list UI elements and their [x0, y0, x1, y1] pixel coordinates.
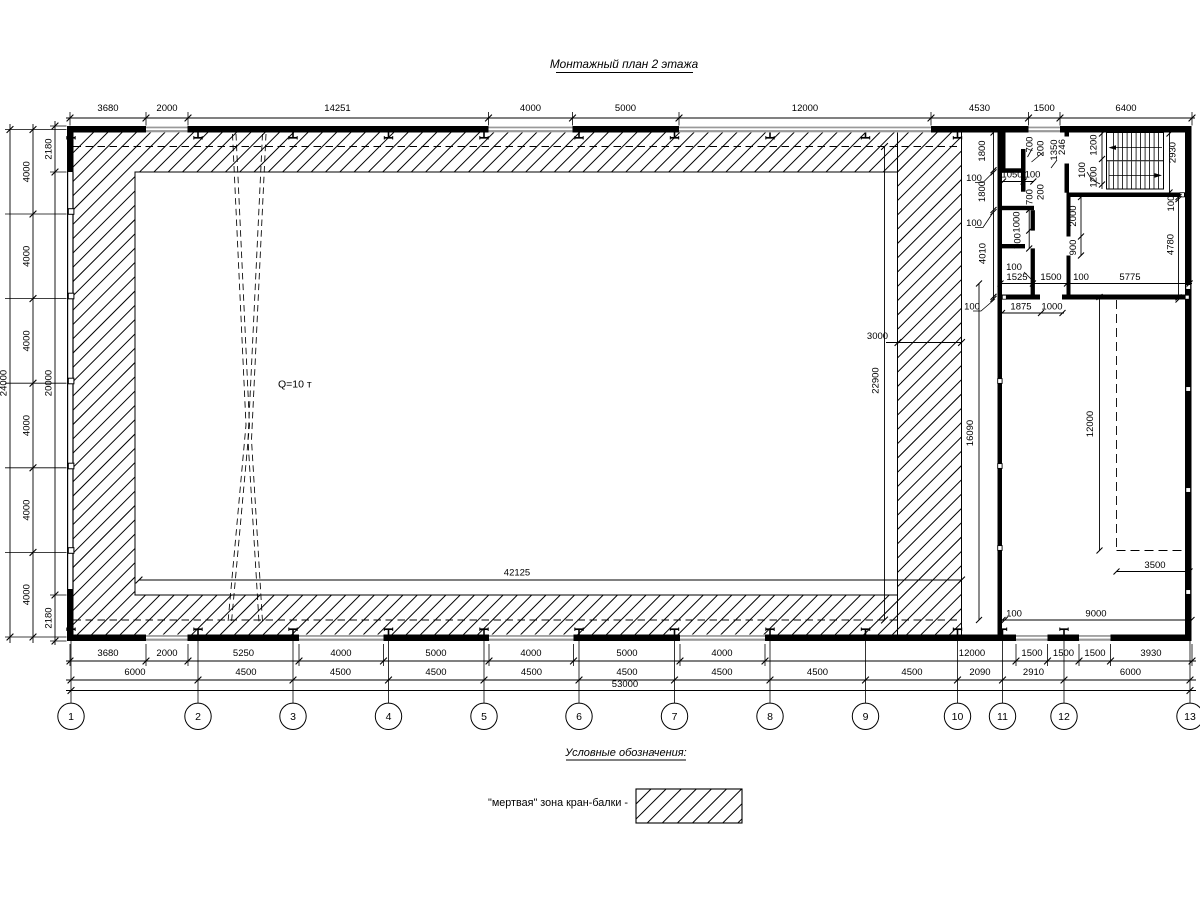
svg-text:4500: 4500 [330, 667, 351, 678]
svg-text:4000: 4000 [520, 103, 541, 114]
svg-text:4530: 4530 [969, 103, 990, 114]
svg-text:1500: 1500 [1021, 648, 1042, 659]
svg-text:2000: 2000 [1068, 205, 1079, 226]
svg-text:1525: 1525 [1006, 272, 1027, 283]
svg-text:11: 11 [997, 711, 1008, 723]
svg-text:4000: 4000 [520, 648, 541, 659]
svg-text:6: 6 [576, 711, 582, 723]
svg-text:1800: 1800 [977, 181, 988, 202]
svg-text:1000: 1000 [1012, 211, 1023, 232]
svg-text:5775: 5775 [1119, 272, 1140, 283]
svg-text:Q=10 т: Q=10 т [278, 379, 312, 391]
svg-text:4000: 4000 [22, 161, 33, 182]
svg-text:100: 100 [1166, 196, 1177, 212]
svg-text:4780: 4780 [1166, 234, 1177, 255]
svg-text:700: 700 [1025, 189, 1036, 205]
svg-text:12000: 12000 [1085, 411, 1096, 437]
svg-text:246: 246 [1057, 139, 1068, 155]
svg-text:4500: 4500 [901, 667, 922, 678]
svg-text:53000: 53000 [612, 679, 638, 690]
svg-text:16090: 16090 [965, 420, 976, 446]
svg-text:8: 8 [767, 711, 773, 723]
svg-text:2000: 2000 [156, 103, 177, 114]
svg-text:4000: 4000 [22, 246, 33, 267]
svg-text:4000: 4000 [330, 648, 351, 659]
svg-text:12000: 12000 [792, 103, 818, 114]
svg-text:2910: 2910 [1023, 667, 1044, 678]
svg-text:9000: 9000 [1085, 609, 1106, 620]
svg-text:1875: 1875 [1010, 302, 1031, 313]
svg-text:2180: 2180 [44, 138, 55, 159]
svg-text:42125: 42125 [504, 568, 530, 579]
svg-text:2: 2 [195, 711, 201, 723]
svg-text:5: 5 [481, 711, 487, 723]
svg-text:3000: 3000 [867, 331, 888, 342]
svg-text:2180: 2180 [44, 607, 55, 628]
svg-text:700: 700 [1013, 233, 1024, 249]
svg-text:6000: 6000 [1120, 667, 1141, 678]
svg-text:13: 13 [1184, 711, 1196, 723]
svg-text:200: 200 [1036, 184, 1047, 200]
svg-text:6400: 6400 [1115, 103, 1136, 114]
svg-text:12000: 12000 [959, 648, 985, 659]
svg-text:1500: 1500 [1084, 648, 1105, 659]
svg-text:4500: 4500 [235, 667, 256, 678]
svg-text:24000: 24000 [0, 370, 10, 396]
svg-text:2000: 2000 [156, 648, 177, 659]
svg-text:4500: 4500 [711, 667, 732, 678]
svg-text:1500: 1500 [1034, 103, 1055, 114]
svg-text:100: 100 [1006, 262, 1022, 273]
svg-text:Монтажный план 2 этажа: Монтажный план 2 этажа [550, 57, 699, 71]
svg-text:5000: 5000 [615, 103, 636, 114]
svg-text:3: 3 [290, 711, 296, 723]
svg-text:4000: 4000 [22, 330, 33, 351]
svg-text:100: 100 [1073, 272, 1089, 283]
svg-text:3680: 3680 [97, 648, 118, 659]
svg-text:3680: 3680 [97, 103, 118, 114]
svg-text:Условные обозначения:: Условные обозначения: [564, 747, 686, 759]
svg-text:4000: 4000 [22, 500, 33, 521]
svg-text:1200: 1200 [1089, 134, 1100, 155]
svg-text:14251: 14251 [324, 103, 350, 114]
svg-text:5000: 5000 [425, 648, 446, 659]
svg-text:1: 1 [68, 711, 74, 723]
svg-text:2930: 2930 [1168, 142, 1179, 163]
svg-text:6000: 6000 [124, 667, 145, 678]
svg-text:4500: 4500 [807, 667, 828, 678]
svg-text:1050: 1050 [1001, 170, 1022, 181]
svg-text:5000: 5000 [616, 648, 637, 659]
svg-text:100: 100 [1006, 609, 1022, 620]
svg-text:1500: 1500 [1053, 648, 1074, 659]
svg-text:1500: 1500 [1040, 272, 1061, 283]
svg-text:4500: 4500 [616, 667, 637, 678]
svg-text:4: 4 [386, 711, 392, 723]
svg-text:1800: 1800 [977, 140, 988, 161]
svg-text:4000: 4000 [22, 584, 33, 605]
svg-text:4500: 4500 [425, 667, 446, 678]
svg-text:4000: 4000 [711, 648, 732, 659]
svg-text:100: 100 [1077, 162, 1088, 178]
svg-text:4500: 4500 [521, 667, 542, 678]
svg-text:7: 7 [672, 711, 678, 723]
svg-text:5250: 5250 [233, 648, 254, 659]
svg-text:1000: 1000 [1041, 302, 1062, 313]
svg-text:4000: 4000 [22, 415, 33, 436]
svg-text:3500: 3500 [1144, 560, 1165, 571]
svg-text:3930: 3930 [1140, 648, 1161, 659]
svg-text:700: 700 [1025, 137, 1036, 153]
svg-text:10: 10 [952, 711, 964, 723]
svg-text:2090: 2090 [969, 667, 990, 678]
svg-text:12: 12 [1058, 711, 1070, 723]
svg-text:4010: 4010 [978, 243, 989, 264]
svg-text:900: 900 [1068, 240, 1079, 256]
svg-text:22900: 22900 [871, 367, 882, 393]
svg-text:"мертвая" зона кран-балки -: "мертвая" зона кран-балки - [488, 797, 628, 809]
svg-text:9: 9 [863, 711, 869, 723]
svg-text:100: 100 [1025, 170, 1041, 181]
